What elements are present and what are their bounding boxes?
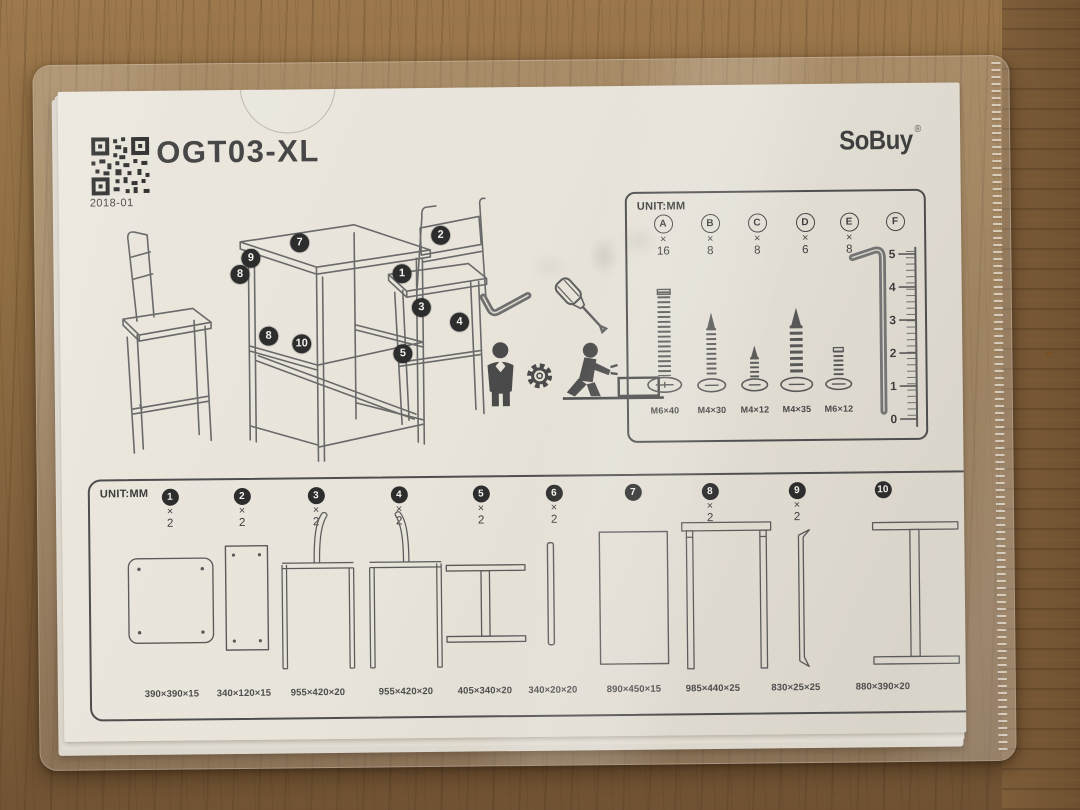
callout-part-8b: 8 [259,327,278,346]
part-number-8: 8 [701,483,718,500]
part-10-stretcher-frame [865,514,966,671]
wood-knot [1046,352,1051,357]
hardware-letter-D: D [795,213,814,232]
part-number-9: 9 [788,482,805,499]
part-3-chair-frame [273,509,367,680]
plastic-sleeve: 2018-01 OGT03-XL SoBuy® [32,55,1016,771]
times-sign: × [693,233,727,245]
part-2-backrest-panel [217,542,276,655]
part-number-4: 4 [390,486,407,503]
hardware-qty-D: 6 [788,244,822,257]
callout-part-2: 2 [431,226,450,245]
screw-B-icon [689,283,734,401]
part-number-1: 1 [161,489,178,506]
ruler-tick-0: 0 [890,412,897,426]
hardware-item-B: B × 8 [693,213,727,258]
hardware-qty-B: 8 [693,245,727,258]
part-9-corner-brace [780,522,822,672]
hardware-qty-A: 16 [646,245,680,258]
hardware-qty-C: 8 [740,244,774,257]
instruction-sheet: 2018-01 OGT03-XL SoBuy® [58,82,967,741]
hardware-letter-E: E [839,212,858,231]
times-sign: × [664,500,756,513]
model-title: OGT03-XL [156,133,320,171]
hardware-item-C: C × 8 [740,212,774,257]
hardware-letter-B: B [700,214,719,233]
callout-part-5: 5 [393,344,412,363]
part-number-3: 3 [307,487,324,504]
hardware-letter-A: A [653,214,672,233]
ruler-icon: 5 4 3 2 1 0 [881,245,923,429]
sleeve-stitched-edge [991,62,1007,754]
hardware-box: UNIT:MM A × 16 B × 8 C × 8 D [625,189,929,443]
part-dim-10: 880×390×20 [828,681,938,693]
assembled-furniture-diagram: 7 9 8 2 1 3 4 8 10 5 [92,195,495,471]
times-sign: × [751,499,843,512]
ruler-tick-1: 1 [890,379,897,393]
part-number-7: 7 [624,484,641,501]
times-sign: × [508,501,600,514]
photo-scene: 2018-01 OGT03-XL SoBuy® [0,0,1080,810]
part-6-rail-bar [535,539,566,649]
brand-name: SoBuy [839,125,913,156]
part-5-stool-stretcher [439,559,534,648]
hardware-item-D: D × 6 [788,212,822,257]
ruler-tick-5: 5 [889,247,896,261]
callout-part-10: 10 [292,334,311,353]
part-number-10: 10 [874,481,891,498]
part-number-6: 6 [545,485,562,502]
times-sign: × [788,232,822,244]
hardware-letter-C: C [747,213,766,232]
part-header-10: 10 [837,479,929,499]
registered-mark: ® [915,123,921,134]
parts-panel: UNIT:MM 1×2 2×2 3×2 4×2 5×2 6×2 7 8×2 9×… [88,470,967,722]
screw-D-icon [774,282,819,400]
part-4-chair-frame-mirror [357,508,451,679]
part-8-table-leg-frame [676,516,778,673]
times-sign: × [646,233,680,245]
brand-logo: SoBuy® [839,125,919,157]
hardware-item-F: F [878,211,912,231]
allen-key-icon [469,266,553,350]
part-number-5: 5 [472,485,489,502]
callout-part-1: 1 [392,264,411,283]
ruler-tick-4: 4 [889,280,896,294]
screw-C-icon [732,282,777,400]
ruler-tick-2: 2 [890,346,897,360]
callout-part-8: 8 [230,265,249,284]
gear-icon [524,361,554,391]
part-7-tabletop [592,527,675,668]
paper-crease-arc [239,82,336,134]
callout-part-7: 7 [290,233,309,252]
callout-part-3: 3 [412,298,431,317]
screw-A-icon [642,283,687,401]
screw-size-A: M6×40 [639,405,691,416]
part-qty-6: 2 [508,513,600,527]
callout-part-4: 4 [450,313,469,332]
hardware-item-A: A × 16 [646,213,680,258]
part-number-2: 2 [233,488,250,505]
ruler-tick-3: 3 [889,313,896,327]
part-1-seat-panel [122,552,219,649]
hardware-letter-F: F [885,212,904,231]
qr-code [91,137,150,196]
person-standing-icon [480,341,521,407]
hardware-unit-label: UNIT:MM [637,200,686,213]
times-sign: × [740,232,774,244]
